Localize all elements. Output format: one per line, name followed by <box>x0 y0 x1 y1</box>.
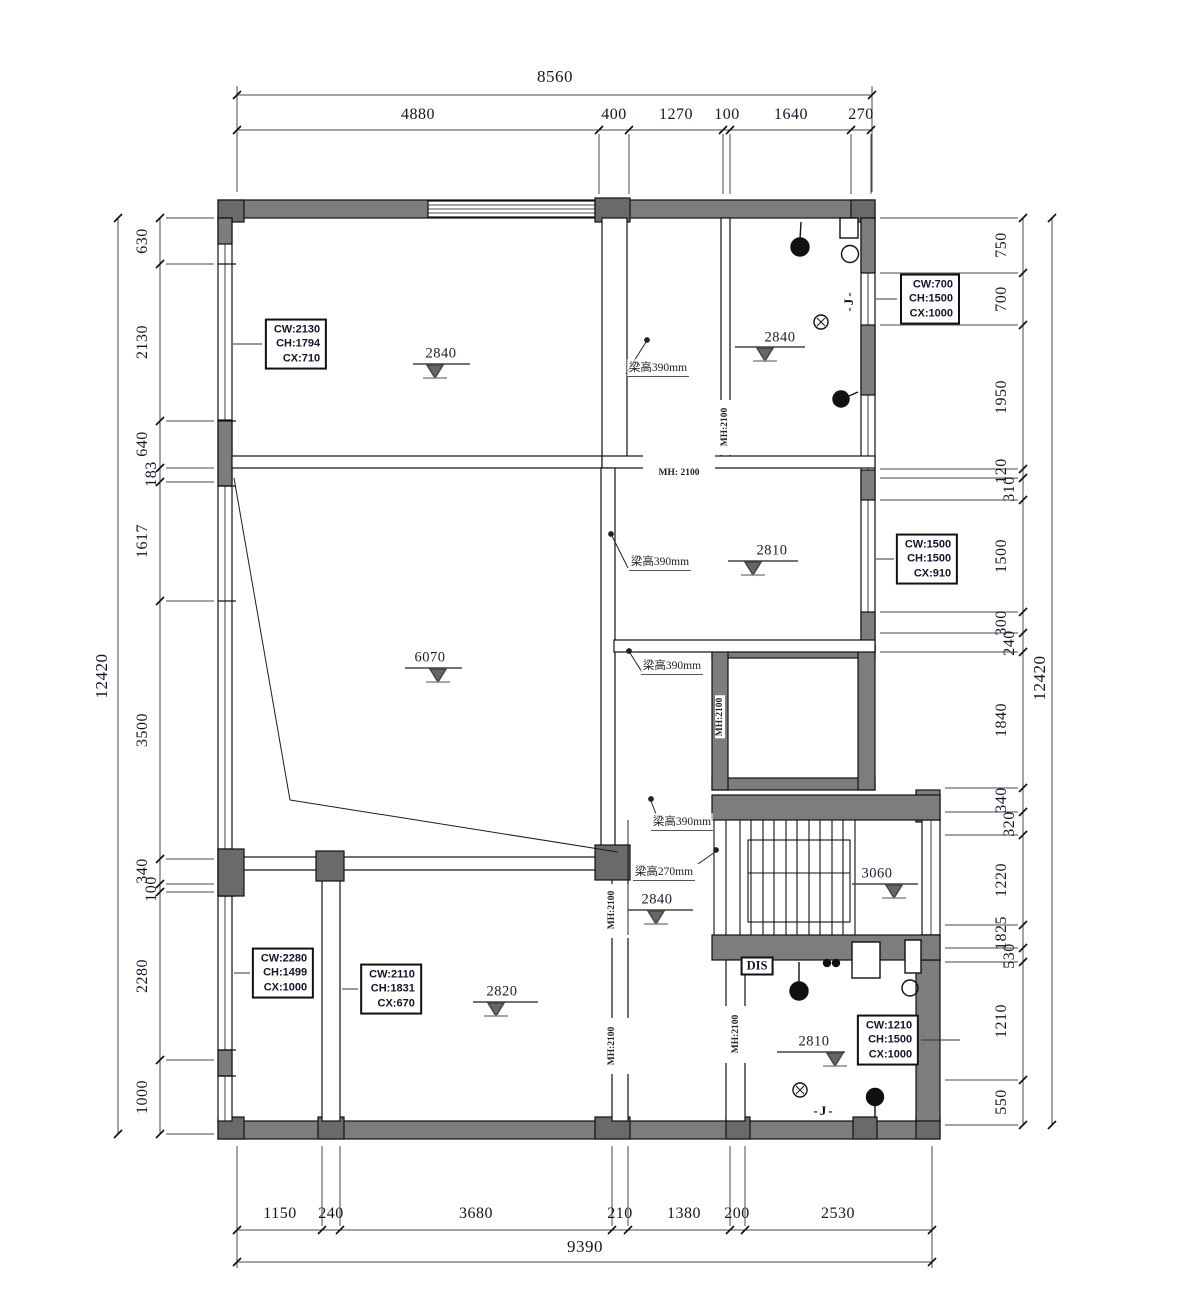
dim-right-seg: 240 <box>1001 630 1019 656</box>
window-callout: CW:1500CH:1500CX:910 <box>896 534 958 585</box>
window-callout: CW:2130CH:1794CX:710 <box>265 319 327 370</box>
stair-wall-top <box>712 795 940 820</box>
door-height-label: MH:2100 <box>715 696 725 739</box>
shaft-wall-bottom <box>712 778 875 790</box>
drain-icon <box>790 982 808 1000</box>
fixture-box <box>905 940 921 973</box>
dim-right-seg: 1220 <box>993 863 1011 897</box>
plan-linework <box>0 0 1200 1311</box>
window-callout: CW:2280CH:1499CX:1000 <box>252 948 314 999</box>
shaft-wall-right <box>858 646 875 790</box>
drain-icon <box>867 1089 884 1106</box>
dim-left-seg: 3500 <box>134 713 152 747</box>
dim-top-seg: 1640 <box>774 106 808 124</box>
dim-right-seg: 700 <box>993 286 1011 312</box>
dim-top-seg: 100 <box>714 106 740 124</box>
dim-left-seg: 100 <box>143 876 161 902</box>
dis-label: DIS <box>741 957 774 976</box>
elevation-label: 2840 <box>426 346 457 363</box>
niche <box>840 218 858 238</box>
beam-height-label: 梁高390mm <box>651 813 713 831</box>
dim-right-seg: 550 <box>993 1089 1011 1115</box>
dim-bottom-seg: 3680 <box>459 1205 493 1223</box>
dim-top-seg: 270 <box>848 106 874 124</box>
dim-top-seg: 400 <box>601 106 627 124</box>
dim-top-overall: 8560 <box>537 67 573 87</box>
door-height-label: MH:2100 <box>607 1025 617 1068</box>
dimension-lines <box>118 86 1052 1268</box>
dim-bottom-seg: 2530 <box>821 1205 855 1223</box>
dot-icon <box>833 960 840 967</box>
beam-height-label: 梁高390mm <box>629 553 691 571</box>
dim-right-seg: 530 <box>1001 943 1019 969</box>
dim-bottom-seg: 210 <box>607 1205 633 1223</box>
dim-top-seg: 4880 <box>401 106 435 124</box>
beam-height-label: 梁高390mm <box>627 359 689 377</box>
floorplan-canvas: 8560 4880 400 1270 100 1640 270 1150 240… <box>0 0 1200 1311</box>
dim-bottom-overall: 9390 <box>567 1237 603 1257</box>
dim-right-overall: 12420 <box>1030 656 1050 701</box>
fixture-box <box>852 942 880 978</box>
beam-height-label: 梁高390mm <box>641 657 703 675</box>
drain-icon <box>833 391 849 407</box>
column <box>595 845 630 880</box>
dim-left-seg: 2130 <box>134 325 152 359</box>
dim-right-seg: 340 <box>993 787 1011 813</box>
dim-bottom-seg: 1150 <box>263 1205 296 1223</box>
elevation-label: 2840 <box>765 330 796 347</box>
dim-right-seg: 310 <box>1001 476 1019 502</box>
dim-right-seg: 320 <box>1001 811 1019 837</box>
j-label: -J- <box>841 290 857 311</box>
dim-bottom-seg: 240 <box>318 1205 344 1223</box>
dim-right-seg: 1950 <box>993 380 1011 414</box>
door-height-label: MH:2100 <box>731 1013 741 1056</box>
partition <box>232 857 601 870</box>
dim-left-seg: 2280 <box>134 959 152 993</box>
dim-left-seg: 1000 <box>134 1080 152 1114</box>
partition <box>601 468 615 857</box>
dim-right-seg: 750 <box>993 232 1011 258</box>
drain-icon <box>791 238 809 256</box>
dim-right-seg: 1840 <box>993 703 1011 737</box>
beam-height-label: 梁高270mm <box>633 863 695 881</box>
partition <box>602 218 627 458</box>
dim-right-seg: 1500 <box>993 539 1011 573</box>
elevation-label: 2810 <box>799 1034 830 1051</box>
elevation-label: 6070 <box>415 650 446 667</box>
dim-bottom-seg: 200 <box>724 1205 750 1223</box>
partition <box>232 456 602 468</box>
elevation-label: 2810 <box>757 543 788 560</box>
dim-right-seg: 1210 <box>993 1004 1011 1038</box>
fixtures <box>790 218 921 1118</box>
dim-left-seg: 630 <box>134 228 152 254</box>
window-callout: CW:700CH:1500CX:1000 <box>900 274 960 325</box>
basin-icon <box>842 246 859 263</box>
dot-icon <box>824 960 831 967</box>
partition <box>602 456 875 468</box>
door-height-label: MH:2100 <box>607 889 617 932</box>
elevation-label: 2820 <box>487 984 518 1001</box>
dim-left-seg: 183 <box>143 461 161 487</box>
dim-top-seg: 1270 <box>659 106 693 124</box>
elevation-label: 3060 <box>862 866 893 883</box>
partition <box>614 640 875 652</box>
window-callout: CW:2110CH:1831CX:670 <box>360 964 422 1015</box>
dimension-ticks <box>114 91 1056 1266</box>
callout-leaders <box>233 299 960 1040</box>
window-callout: CW:1210CH:1500CX:1000 <box>857 1015 919 1066</box>
dim-left-seg: 1617 <box>134 524 152 558</box>
dim-left-seg: 640 <box>134 431 152 457</box>
column <box>316 851 344 881</box>
elevation-label: 2840 <box>642 892 673 909</box>
partition <box>322 870 340 1121</box>
j-label: -J- <box>813 1103 834 1119</box>
door-height-label: MH: 2100 <box>657 468 702 478</box>
dim-left-overall: 12420 <box>92 654 112 699</box>
column <box>853 1117 877 1139</box>
dim-bottom-seg: 1380 <box>667 1205 701 1223</box>
column <box>218 849 244 896</box>
door-height-label: MH:2100 <box>720 406 730 449</box>
